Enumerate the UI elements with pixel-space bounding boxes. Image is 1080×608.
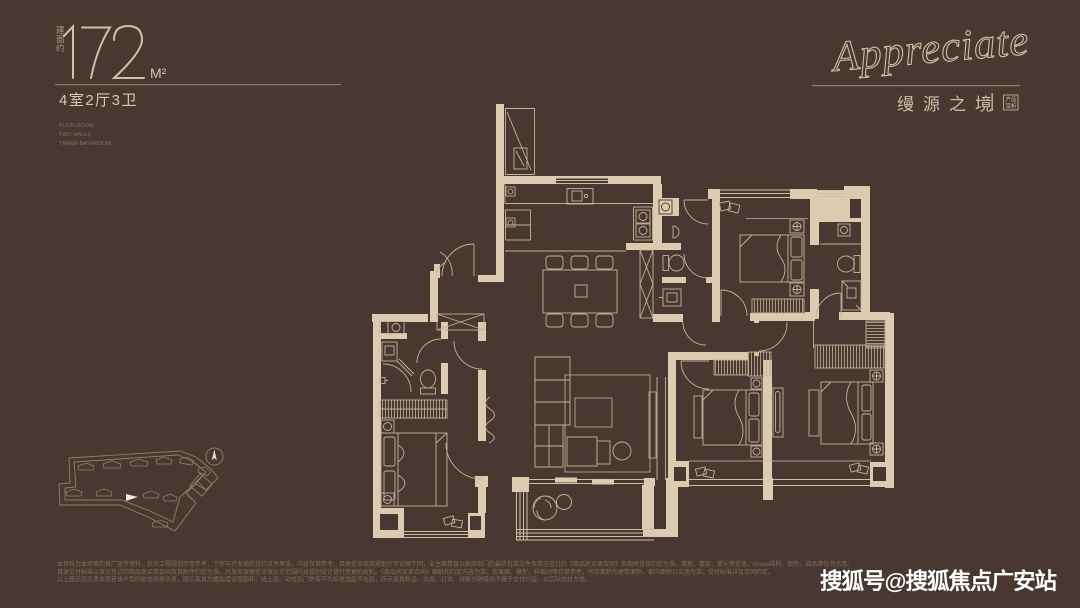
svg-text:产品: 产品	[1006, 96, 1018, 104]
svg-text:本资料为本项目的推广宣传资料，仅作工程规划示意参考，下作与开: 本资料为本项目的推广宣传资料，仅作工程规划示意参考，下作与开发商的签约文件承诺，…	[57, 560, 853, 568]
svg-text:搜狐号@搜狐焦点广安站: 搜狐号@搜狐焦点广安站	[820, 568, 1057, 594]
svg-text:4室2厅3卫: 4室2厅3卫	[59, 92, 138, 109]
svg-text:M²: M²	[150, 65, 167, 81]
svg-text:约: 约	[56, 43, 65, 53]
svg-text:THREE-BATHROOM: THREE-BATHROOM	[59, 141, 111, 147]
svg-text:缦源之境: 缦源之境	[897, 95, 1001, 114]
svg-text:具体交付标准以双方签订的商品房买卖合同及其附件约定为准。开发: 具体交付标准以双方签订的商品房买卖合同及其附件约定为准。开发商保留在法律允许范围…	[57, 568, 774, 576]
svg-text:FOUR-ROOM: FOUR-ROOM	[59, 123, 94, 129]
svg-text:TWO-HALLS: TWO-HALLS	[59, 132, 91, 138]
svg-text:赏析: 赏析	[1006, 102, 1018, 110]
svg-text:以上图示仅示意本项目该户型的装修风格示意，图示家具为模拟摆设: 以上图示仅示意本项目该户型的装修风格示意，图示家具为模拟摆设图面和，线上图、动线…	[57, 576, 591, 584]
